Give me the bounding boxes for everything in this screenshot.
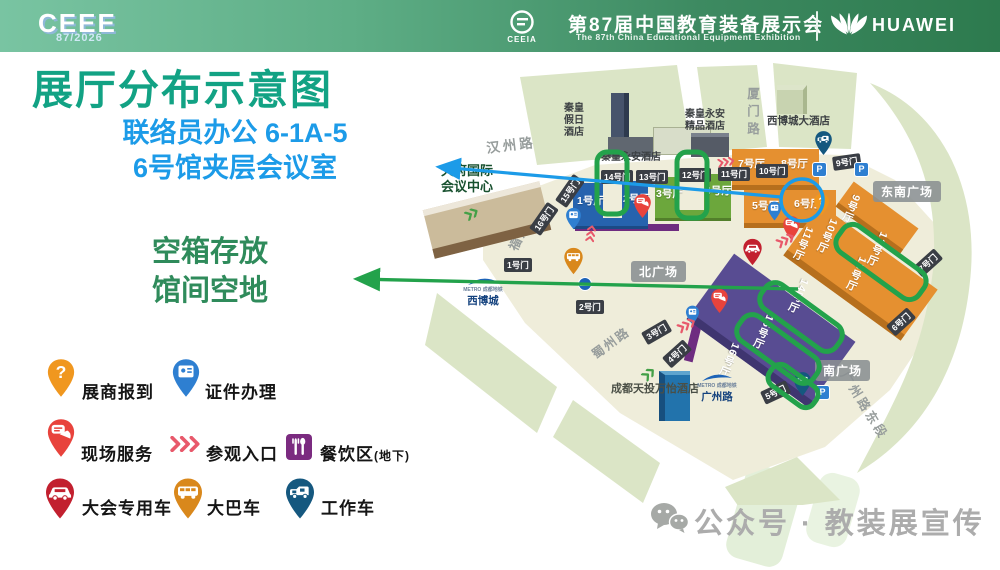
metro-station-name: 西博城 — [453, 293, 513, 308]
map-work-car-pin-icon — [814, 130, 833, 156]
legend-bus-pin-icon — [172, 477, 204, 520]
parking-icon: P — [854, 162, 869, 177]
metro-station-name: 广州路 — [687, 389, 747, 404]
road-xiamen: 厦门路 — [743, 87, 762, 140]
wechat-account-text: 公众号 · 教装展宣传 — [694, 500, 985, 542]
legend-bus-label: 大巴车 — [207, 494, 261, 519]
map-credential-pin-icon — [565, 207, 582, 230]
legend-dining-text: 餐饮区 — [320, 445, 374, 464]
gate-11: 11号门 — [718, 167, 750, 181]
map-credential-pin-icon — [767, 201, 782, 221]
plaza-north: 北广场 — [631, 261, 686, 282]
legend-entrance-label: 参观入口 — [206, 440, 278, 465]
map-work-car-pin-icon — [793, 371, 812, 397]
exhibition-title-en: The 87th China Educational Equipment Exh… — [576, 32, 801, 42]
gate-14: 14号门 — [601, 170, 633, 184]
building-qh-boutique — [691, 133, 729, 157]
legend-service-label: 现场服务 — [81, 440, 153, 465]
gate-13: 13号门 — [636, 170, 668, 184]
header-bar: CEEE 87/2026 CEEIA 第87届中国教育装备展示会 The 87t… — [0, 0, 1000, 52]
storage-line1: 空箱存放 — [95, 233, 325, 272]
building-qh-holiday-label: 秦皇假日酒店 — [564, 103, 588, 139]
legend: 展商报到 证件办理 现场服务 参观入口 餐饮区(地下) 大会专用车 大巴车 工作… — [0, 350, 430, 562]
hall-1-label: 1号厅 — [577, 193, 604, 208]
legend-service-pin-icon — [46, 418, 76, 458]
building-qh-yongan-label: 秦皇永安酒店 — [601, 152, 661, 164]
ceeia-label: CEEIA — [505, 35, 539, 44]
ceee-logo-year: 87/2026 — [56, 32, 103, 44]
legend-dining-suffix: (地下) — [374, 449, 410, 463]
legend-register-pin-icon — [46, 358, 76, 398]
huawei-flower-icon — [830, 13, 868, 37]
hall-3-label: 3号厅 — [656, 186, 683, 201]
header-divider — [816, 11, 818, 41]
building-marriott-label: 成都天投万怡酒店 — [611, 383, 699, 396]
hall-4-label: 4号厅 — [705, 183, 732, 198]
metro-guangzhoulu: METRO 成都地铁 广州路 — [687, 373, 747, 404]
storage-line2: 馆间空地 — [95, 272, 325, 311]
gate-1: 1号门 — [504, 258, 532, 272]
metro-brand: METRO 成都地铁 — [453, 286, 513, 293]
metro-xibocheng: METRO 成都地铁 西博城 — [453, 277, 513, 308]
gate-12: 12号门 — [679, 168, 711, 182]
map-bus-pin-icon — [563, 247, 584, 275]
map-register-pin-icon — [813, 193, 830, 216]
parking-icon: P — [815, 385, 830, 400]
plaza-south: 南广场 — [815, 360, 870, 381]
liaison-callout: 联络员办公 6-1A-5 6号馆夹层会议室 — [40, 116, 430, 186]
parking-letter: P — [819, 387, 825, 397]
gate-10: 10号门 — [756, 164, 788, 178]
wechat-icon — [650, 500, 690, 536]
gate-2: 2号门 — [576, 300, 604, 314]
map-service-pin-icon — [633, 193, 652, 219]
map-service-pin-icon — [710, 288, 729, 314]
parking-icon: P — [812, 162, 827, 177]
liaison-line1: 联络员办公 6-1A-5 — [40, 116, 430, 151]
legend-work-car-label: 工作车 — [321, 494, 375, 519]
ceeia-logo: CEEIA — [505, 9, 539, 44]
legend-register-label: 展商报到 — [82, 378, 154, 403]
liaison-line2: 6号馆夹层会议室 — [40, 151, 430, 186]
metro-swoosh-icon — [700, 373, 734, 382]
legend-conference-car-pin-icon — [44, 477, 76, 520]
metro-swoosh-icon — [466, 277, 500, 286]
metro-entrance-icon — [578, 277, 592, 291]
legend-work-car-pin-icon — [284, 477, 316, 520]
building-xbc-hotel — [777, 85, 807, 114]
hall-3-4-base — [655, 210, 731, 221]
building-tianfu-label: 天府国际会议中心 — [441, 163, 503, 194]
legend-dining-label: 餐饮区(地下) — [320, 440, 410, 465]
parking-letter: P — [858, 164, 864, 174]
parking-letter: P — [816, 164, 822, 174]
legend-credential-label: 证件办理 — [205, 378, 277, 403]
map-conference-car-pin-icon — [742, 238, 763, 266]
storage-callout: 空箱存放 馆间空地 — [95, 233, 325, 311]
legend-dining-icon — [286, 434, 312, 460]
plaza-southeast: 东南广场 — [873, 181, 941, 202]
legend-entrance-chevrons-icon — [170, 436, 202, 452]
hall-1-2-base — [573, 218, 648, 229]
legend-credential-pin-icon — [171, 358, 201, 398]
huawei-wordmark: HUAWEI — [872, 15, 956, 36]
building-xbc-hotel-label: 西博城大酒店 — [767, 115, 830, 128]
ceeia-emblem-icon — [509, 9, 535, 35]
legend-conference-car-label: 大会专用车 — [82, 494, 172, 519]
metro-brand: METRO 成都地铁 — [687, 382, 747, 389]
page-title: 展厅分布示意图 — [32, 56, 333, 116]
venue-map: 汉州路 福州路 厦门路 蜀州路 广州路东段 天府国际会议中心 秦皇假日酒店 秦皇… — [425, 55, 1000, 505]
building-qh-boutique-label: 秦皇永安精品酒店 — [685, 109, 733, 133]
